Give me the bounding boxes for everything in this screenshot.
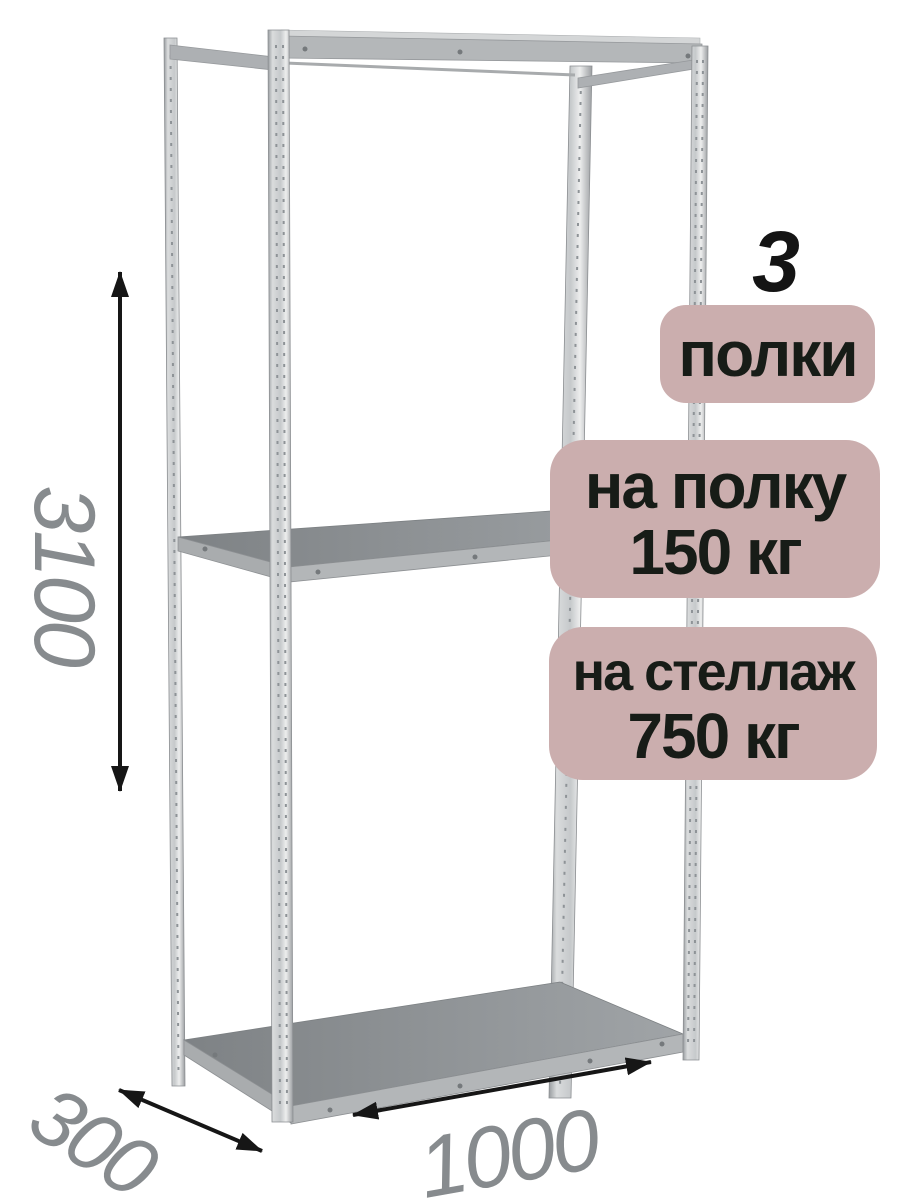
bolt xyxy=(316,570,321,575)
shelves-count-badge-label: полки xyxy=(678,317,856,391)
height-dimension-label: 3100 xyxy=(21,485,107,664)
shelf-load-badge: на полку 150 кг xyxy=(550,440,880,598)
product-illustration: 3100 300 1000 3 полки на полку 150 кг на… xyxy=(0,0,900,1200)
top-back-beam xyxy=(285,63,575,75)
bolt xyxy=(660,1042,665,1047)
bolt xyxy=(458,50,463,55)
shelf-load-line1: на полку xyxy=(585,453,845,519)
shelves-count-badge: полки xyxy=(660,305,875,403)
shelving-rack-illustration xyxy=(0,0,900,1200)
rack-load-badge: на стеллаж 750 кг xyxy=(549,627,877,780)
top-left-side-beam xyxy=(170,45,283,71)
bolt xyxy=(328,1108,333,1113)
bolt xyxy=(473,555,478,560)
rack-load-line1: на стеллаж xyxy=(572,640,853,704)
bolt xyxy=(213,1053,218,1058)
rack-load-line2: 750 кг xyxy=(627,704,798,768)
shelf-load-line2: 150 кг xyxy=(629,519,800,585)
rack-post-front-left xyxy=(268,30,293,1122)
bolt xyxy=(588,1059,593,1064)
top-right-side-beam xyxy=(578,59,700,88)
bolt xyxy=(458,1084,463,1089)
bolt xyxy=(686,54,691,59)
bolt xyxy=(303,47,308,52)
bolt xyxy=(203,547,208,552)
top-frame xyxy=(170,30,702,88)
shelves-count-number: 3 xyxy=(752,219,800,305)
